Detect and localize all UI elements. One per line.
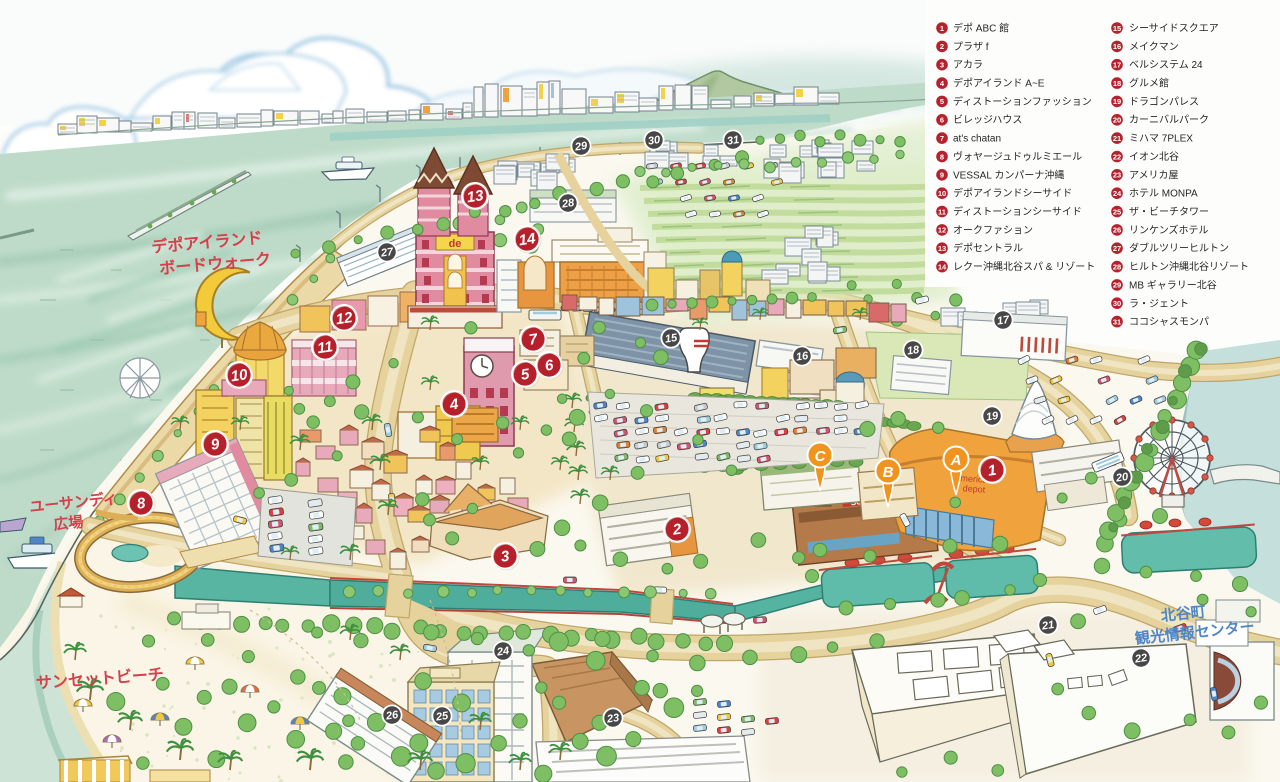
svg-text:13: 13 — [466, 187, 486, 206]
svg-text:23: 23 — [1113, 171, 1121, 180]
svg-text:29: 29 — [573, 140, 589, 154]
svg-text:オークファション: オークファション — [953, 224, 1033, 236]
svg-text:1: 1 — [940, 24, 944, 33]
svg-text:カーニバルパーク: カーニバルパーク — [1129, 114, 1209, 126]
svg-text:28: 28 — [560, 197, 576, 211]
svg-text:depot: depot — [962, 483, 986, 495]
svg-text:ミハマ 7PLEX: ミハマ 7PLEX — [1129, 134, 1193, 145]
svg-text:9: 9 — [940, 171, 944, 180]
svg-text:デポ ABC 館: デポ ABC 館 — [953, 22, 1009, 35]
svg-text:ディストーションファッション: ディストーションファッション — [953, 95, 1092, 108]
svg-text:12: 12 — [335, 309, 355, 328]
svg-text:ラ・ジェント: ラ・ジェント — [1129, 298, 1189, 310]
svg-text:25: 25 — [1113, 207, 1121, 216]
svg-text:シーサイドスクエア: シーサイドスクエア — [1129, 23, 1219, 35]
svg-text:7: 7 — [940, 134, 944, 143]
svg-text:22: 22 — [1133, 652, 1148, 666]
svg-text:6: 6 — [940, 116, 944, 125]
svg-text:ビレッジハウス: ビレッジハウス — [953, 114, 1022, 126]
svg-text:5: 5 — [940, 97, 944, 106]
svg-text:26: 26 — [384, 709, 400, 723]
svg-text:10: 10 — [938, 189, 946, 198]
svg-text:25: 25 — [434, 710, 450, 724]
svg-text:メイクマン: メイクマン — [1129, 41, 1179, 53]
svg-text:29: 29 — [1113, 281, 1121, 290]
svg-text:de: de — [449, 238, 462, 250]
svg-text:広場: 広場 — [53, 513, 85, 534]
svg-text:31: 31 — [1113, 317, 1121, 326]
svg-text:B: B — [883, 464, 894, 481]
svg-text:28: 28 — [1113, 262, 1121, 271]
svg-text:at's chatan: at's chatan — [953, 134, 1001, 145]
svg-text:デポアイランド A~E: デポアイランド A~E — [953, 77, 1045, 90]
svg-text:26: 26 — [1113, 226, 1121, 235]
svg-text:18: 18 — [1113, 79, 1121, 88]
svg-text:10: 10 — [230, 366, 250, 385]
svg-text:アメリカ屋: アメリカ屋 — [1129, 169, 1179, 181]
svg-text:24: 24 — [495, 645, 510, 659]
svg-text:グルメ館: グルメ館 — [1129, 77, 1169, 90]
svg-text:ドラゴンパレス: ドラゴンパレス — [1129, 95, 1199, 108]
svg-text:デポセントラル: デポセントラル — [953, 242, 1023, 255]
svg-text:レクー沖縄北谷スパ & リゾート: レクー沖縄北谷スパ & リゾート — [953, 260, 1095, 273]
svg-text:30: 30 — [1113, 299, 1121, 308]
svg-text:23: 23 — [605, 712, 620, 726]
svg-text:ヴォヤージュドゥルミエール: ヴォヤージュドゥルミエール — [953, 150, 1082, 163]
svg-text:17: 17 — [1113, 61, 1121, 70]
svg-text:21: 21 — [1040, 619, 1055, 633]
svg-text:3: 3 — [940, 61, 944, 70]
svg-text:ディストーションシーサイド: ディストーションシーサイド — [953, 205, 1082, 218]
svg-text:27: 27 — [379, 246, 395, 260]
svg-text:13: 13 — [938, 244, 946, 253]
svg-text:イオン北谷: イオン北谷 — [1129, 151, 1179, 163]
svg-text:ヒルトン沖縄北谷リゾート: ヒルトン沖縄北谷リゾート — [1129, 260, 1249, 273]
svg-text:11: 11 — [938, 207, 946, 216]
svg-text:21: 21 — [1113, 134, 1121, 143]
svg-text:ダブルツリーヒルトン: ダブルツリーヒルトン — [1129, 242, 1229, 255]
svg-text:A: A — [950, 452, 962, 469]
svg-text:16: 16 — [1113, 42, 1121, 51]
svg-text:14: 14 — [938, 262, 947, 271]
svg-text:MB ギャラリー北谷: MB ギャラリー北谷 — [1129, 279, 1217, 291]
svg-text:ココシャスモンパ: ココシャスモンパ — [1129, 316, 1209, 328]
svg-text:VESSAL カンパーナ沖縄: VESSAL カンパーナ沖縄 — [953, 168, 1064, 181]
svg-text:20: 20 — [1114, 471, 1130, 485]
svg-text:27: 27 — [1113, 244, 1121, 253]
svg-text:アカラ: アカラ — [953, 59, 983, 71]
svg-text:11: 11 — [316, 338, 334, 357]
svg-text:31: 31 — [726, 134, 740, 148]
svg-text:ホテル MONPA: ホテル MONPA — [1129, 188, 1198, 200]
svg-text:24: 24 — [1113, 189, 1122, 198]
svg-text:12: 12 — [938, 226, 946, 235]
svg-text:14: 14 — [518, 230, 538, 249]
svg-text:C: C — [815, 448, 827, 465]
svg-text:20: 20 — [1113, 116, 1121, 125]
svg-text:プラザ f: プラザ f — [953, 41, 989, 53]
svg-text:ザ・ビーチタワー: ザ・ビーチタワー — [1129, 206, 1209, 218]
svg-text:リンケンズホテル: リンケンズホテル — [1129, 223, 1209, 236]
svg-text:デポアイランドシーサイド: デポアイランドシーサイド — [953, 187, 1072, 200]
svg-text:19: 19 — [1113, 97, 1121, 106]
svg-text:ベルシステム 24: ベルシステム 24 — [1129, 59, 1203, 71]
svg-text:2: 2 — [940, 42, 944, 51]
svg-text:22: 22 — [1113, 152, 1121, 161]
svg-text:15: 15 — [1113, 24, 1121, 33]
svg-text:8: 8 — [940, 152, 944, 161]
